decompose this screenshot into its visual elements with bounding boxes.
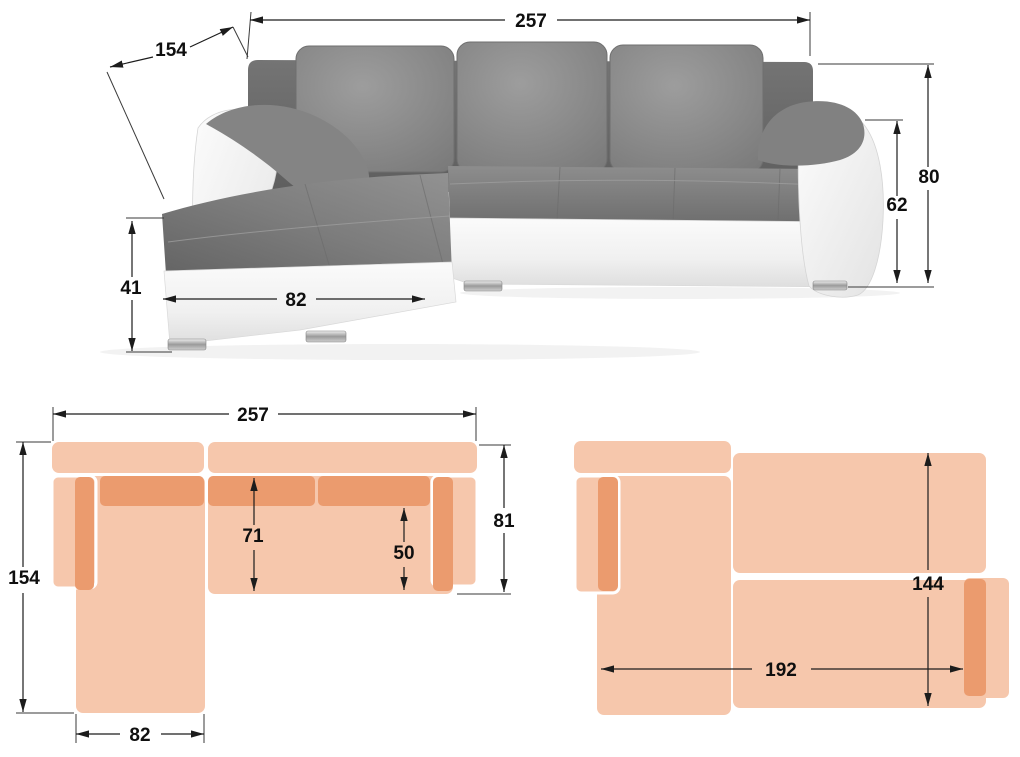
bed-left-armrest-pad [598, 477, 618, 591]
dim-plan-sofa-depth-label: 81 [493, 511, 515, 532]
ext-width-left [247, 12, 251, 59]
sofa-foot-back-right [813, 281, 847, 290]
ext-depth-bottom [107, 72, 164, 199]
plan-left-armrest-pad [75, 477, 94, 590]
dim-plan-depth-label: 154 [8, 568, 40, 589]
right-seat-cushion [448, 166, 820, 226]
dim-plan-seat-depth-label: 71 [242, 526, 264, 547]
dim-chaise-depth-label: 154 [155, 40, 187, 61]
top-view-bed: 144 192 [574, 441, 1009, 715]
right-base [448, 218, 851, 287]
plan-seat-cushion-3 [318, 476, 430, 506]
dim-chaise-depth-line [190, 27, 233, 47]
dim-chaise-width-label: 82 [285, 290, 306, 311]
sofa-foot-back-middle [464, 281, 502, 291]
top-view-folded: 257 154 82 71 50 81 [8, 405, 515, 746]
bed-mattress-upper [733, 453, 986, 573]
plan-right-armrest-pad [433, 477, 453, 591]
plan-seat-cushion-2 [208, 476, 315, 506]
dim-chaise-depth-line [110, 57, 153, 67]
dim-base-height-label: 41 [120, 278, 142, 299]
front-view: 257 154 41 82 80 62 [100, 11, 940, 360]
dim-plan-right-seat-depth-label: 50 [393, 543, 414, 564]
plan-seat-cushion-1 [100, 476, 204, 506]
ext-depth-top [233, 27, 248, 57]
dim-overall-width-label: 257 [515, 11, 547, 32]
plan-backrest-right [208, 442, 477, 473]
back-pillow-middle [457, 42, 607, 172]
sofa-foot-front-middle [306, 331, 346, 342]
bed-right-armrest-pad [964, 579, 986, 696]
dim-armrest-height-label: 62 [886, 195, 907, 216]
dim-bed-length-label: 192 [765, 660, 797, 681]
sofa-dimensions-diagram: 257 154 41 82 80 62 [0, 0, 1020, 757]
dim-total-height-label: 80 [918, 167, 939, 188]
dim-bed-width-label: 144 [912, 574, 944, 595]
bed-backrest [574, 441, 731, 473]
sofa-foot-front-left [168, 339, 206, 350]
bed-mattress-lower [733, 580, 986, 708]
back-pillow-right [610, 45, 763, 172]
dim-plan-chaise-width-label: 82 [129, 725, 150, 746]
dim-plan-width-label: 257 [237, 405, 269, 426]
diagram-svg: 257 154 41 82 80 62 [0, 0, 1020, 757]
plan-backrest-left [52, 442, 204, 473]
